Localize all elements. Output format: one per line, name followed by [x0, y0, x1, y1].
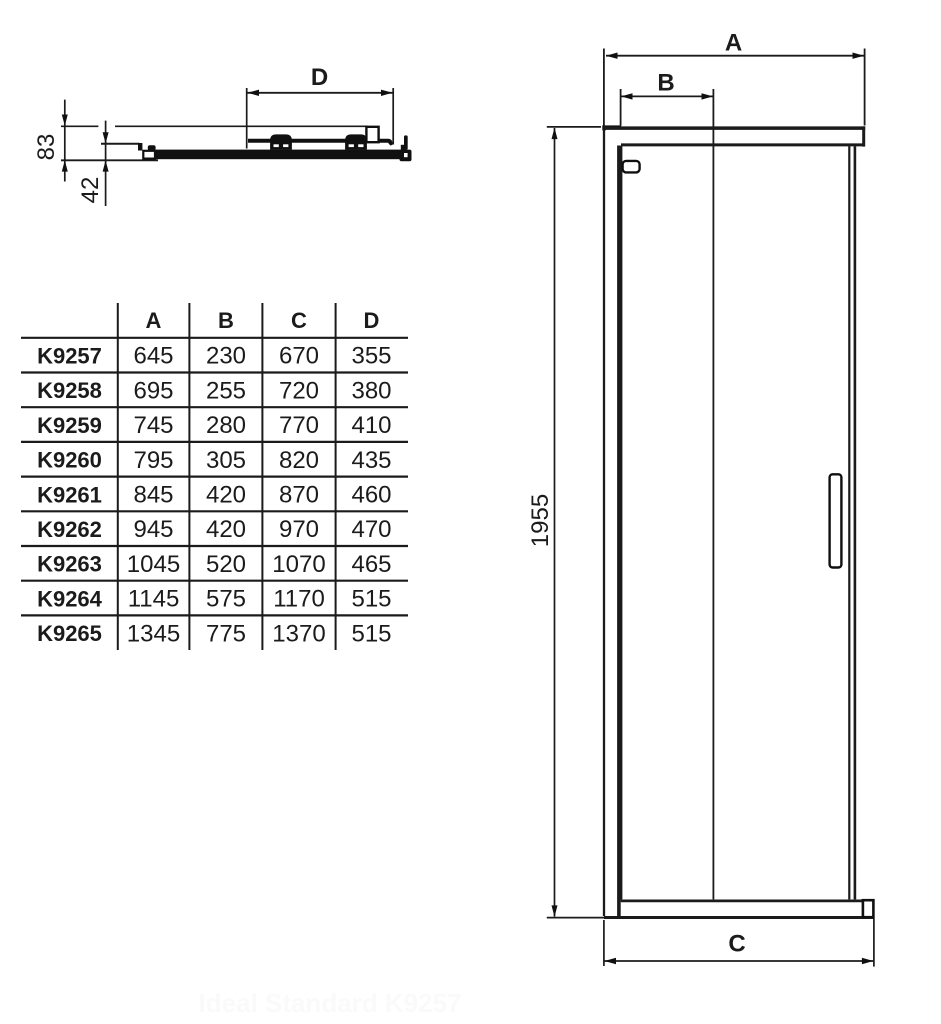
svg-text:420: 420 — [206, 482, 246, 509]
svg-text:D: D — [364, 308, 380, 333]
svg-text:K9257: K9257 — [37, 344, 102, 369]
svg-text:K9262: K9262 — [37, 517, 102, 542]
svg-text:K9259: K9259 — [37, 413, 102, 438]
svg-text:1370: 1370 — [272, 620, 325, 647]
svg-text:K9264: K9264 — [37, 586, 103, 611]
svg-text:410: 410 — [351, 412, 391, 439]
svg-text:870: 870 — [279, 482, 319, 509]
svg-text:945: 945 — [133, 516, 173, 543]
svg-text:1170: 1170 — [273, 586, 325, 613]
svg-text:575: 575 — [206, 586, 246, 613]
svg-text:420: 420 — [206, 516, 246, 543]
svg-text:K9261: K9261 — [37, 482, 102, 507]
svg-text:795: 795 — [133, 447, 173, 474]
svg-text:515: 515 — [351, 586, 391, 613]
svg-text:770: 770 — [279, 412, 319, 439]
svg-text:775: 775 — [206, 620, 246, 647]
svg-text:460: 460 — [351, 482, 391, 509]
svg-text:B: B — [218, 308, 234, 333]
svg-text:42: 42 — [77, 177, 104, 204]
svg-text:845: 845 — [133, 482, 173, 509]
svg-text:A: A — [146, 308, 162, 333]
svg-text:A: A — [725, 30, 742, 57]
svg-text:230: 230 — [206, 343, 246, 370]
svg-text:515: 515 — [351, 620, 391, 647]
svg-text:1070: 1070 — [272, 551, 325, 578]
svg-text:B: B — [657, 70, 674, 97]
svg-text:695: 695 — [133, 377, 173, 404]
svg-text:745: 745 — [133, 412, 173, 439]
svg-text:K9260: K9260 — [37, 448, 102, 473]
svg-text:720: 720 — [279, 377, 319, 404]
svg-text:355: 355 — [351, 343, 391, 370]
svg-text:K9263: K9263 — [37, 552, 102, 577]
svg-text:K9258: K9258 — [37, 378, 102, 403]
svg-text:1045: 1045 — [127, 551, 180, 578]
svg-text:1345: 1345 — [127, 620, 180, 647]
svg-text:C: C — [291, 308, 307, 333]
svg-text:380: 380 — [351, 377, 391, 404]
svg-text:670: 670 — [279, 343, 319, 370]
svg-text:520: 520 — [206, 551, 246, 578]
svg-text:D: D — [311, 64, 328, 91]
svg-text:465: 465 — [351, 551, 391, 578]
svg-text:255: 255 — [206, 377, 246, 404]
svg-text:1955: 1955 — [527, 494, 554, 547]
svg-text:470: 470 — [351, 516, 391, 543]
svg-text:K9265: K9265 — [37, 621, 102, 646]
svg-text:435: 435 — [351, 447, 391, 474]
svg-text:280: 280 — [206, 412, 246, 439]
svg-text:305: 305 — [206, 447, 246, 474]
svg-text:970: 970 — [279, 516, 319, 543]
svg-text:1145: 1145 — [128, 586, 180, 613]
svg-text:Ideal Standard K9257: Ideal Standard K9257 — [199, 988, 462, 1018]
svg-text:820: 820 — [279, 447, 319, 474]
svg-text:C: C — [728, 931, 745, 958]
svg-text:645: 645 — [133, 343, 173, 370]
svg-text:83: 83 — [33, 134, 60, 161]
